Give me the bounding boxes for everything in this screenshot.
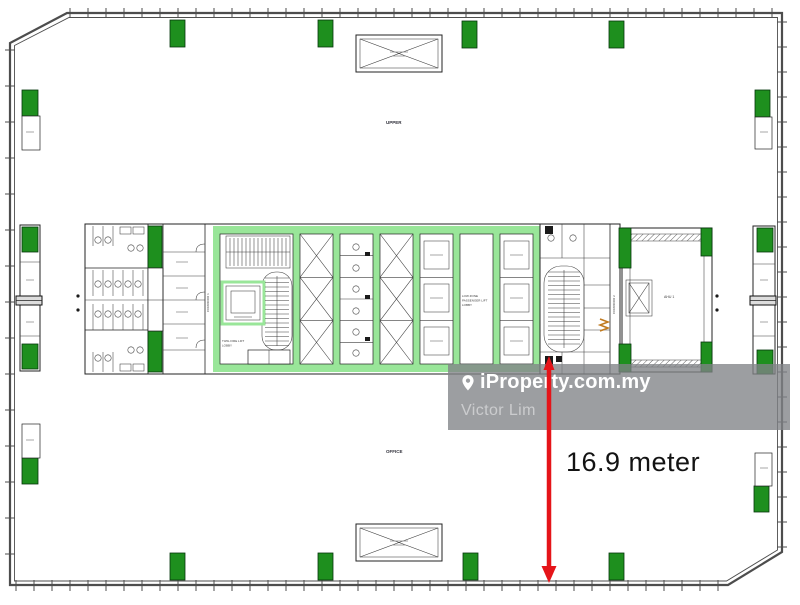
corridor-1-label: CORRIDOR 1 <box>206 293 210 312</box>
corridor-2-label: CORRIDOR 2 <box>612 295 616 314</box>
watermark-brand: iProperty.com.my <box>480 371 651 394</box>
floorplan-drawing: CORRIDOR 1 T3/6L FIRE LIFT LOBBY <box>0 0 800 605</box>
lift-bank-right <box>500 234 533 364</box>
wc-strip <box>340 234 373 364</box>
x-shaft-bank-2 <box>380 234 413 364</box>
ahu-room: AHU 1 <box>619 228 712 372</box>
right-service-shaft <box>750 226 776 374</box>
building-core: CORRIDOR 1 T3/6L FIRE LIFT LOBBY <box>85 224 620 374</box>
watermark-card: iProperty.com.my Victor Lim <box>448 364 790 430</box>
lift-lobby: LOW ZONE PASSENGER LIFT LOBBY <box>460 234 493 364</box>
svg-text:LOBBY: LOBBY <box>462 303 472 307</box>
fire-lift-lobby-label: T3/6L FIRE LIFT <box>222 339 244 343</box>
left-service-shaft <box>16 225 42 371</box>
zone-label-upper: UPPER <box>386 120 402 125</box>
watermark-brand-row: iProperty.com.my <box>461 371 790 394</box>
zone-label-office: OFFICE <box>386 449 403 454</box>
map-pin-icon <box>461 374 475 392</box>
svg-text:PASSENGER LIFT: PASSENGER LIFT <box>462 299 488 303</box>
dimension-label: 16.9 meter <box>566 447 700 478</box>
svg-text:LOBBY: LOBBY <box>222 344 232 348</box>
floorplan-canvas: CORRIDOR 1 T3/6L FIRE LIFT LOBBY <box>0 0 800 605</box>
watermark-agent: Victor Lim <box>461 402 790 420</box>
ahu-label: AHU 1 <box>664 295 674 299</box>
xbox-top <box>356 35 442 72</box>
xbox-bottom <box>356 524 442 561</box>
x-shaft-bank-1 <box>300 234 333 364</box>
lowzone-label: LOW ZONE <box>462 294 478 298</box>
lift-bank-left <box>420 234 453 364</box>
